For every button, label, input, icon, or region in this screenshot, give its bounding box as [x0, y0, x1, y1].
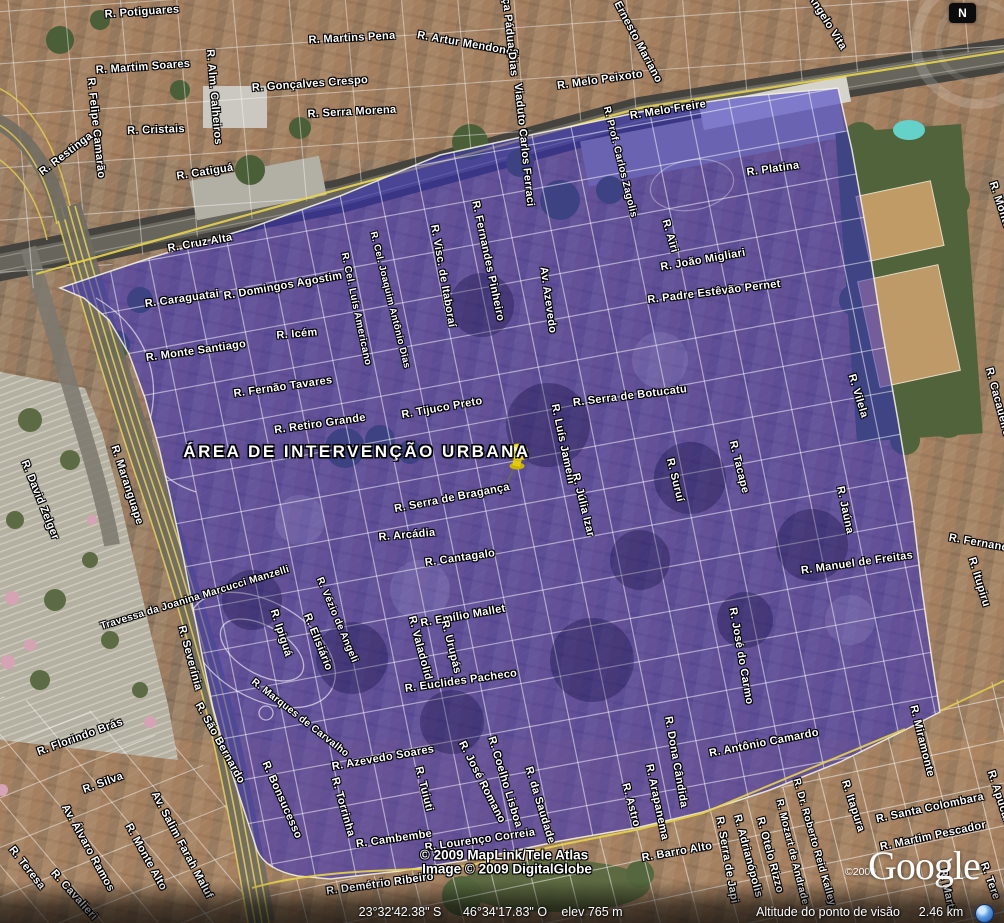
google-earth-map-canvas[interactable]: R. PotiguaresR. Martim SoaresR. Gonçalve…: [0, 0, 1004, 923]
eye-altitude-label: Altitude do ponto de visão: [756, 905, 900, 919]
streaming-indicator-icon: [975, 904, 994, 923]
swimming-pool: [893, 120, 925, 140]
eye-altitude-value: 2.46 km: [919, 905, 963, 919]
longitude-readout: 46°34'17.83" O: [463, 905, 547, 919]
elevation-readout: elev 765 m: [561, 905, 622, 919]
imagery-attribution: Image © 2009 DigitalGlobe: [422, 862, 592, 877]
intervention-area-label: ÁREA DE INTERVENÇÃO URBANA: [183, 442, 530, 462]
compass-label: N: [958, 6, 967, 20]
latitude-readout: 23°32'42.38" S: [359, 905, 442, 919]
compass-north-button[interactable]: N: [949, 3, 976, 23]
map-data-attribution: © 2009 MapLink/Tele Atlas: [420, 848, 588, 863]
